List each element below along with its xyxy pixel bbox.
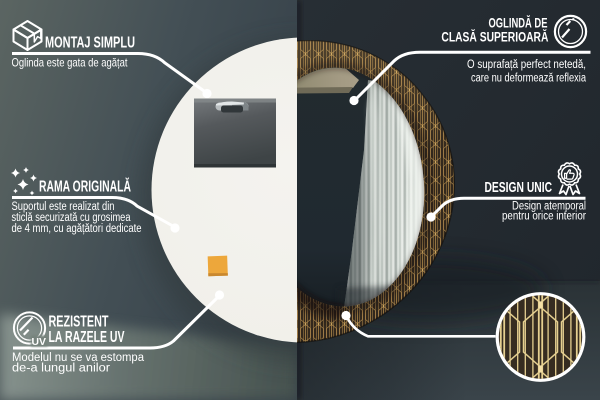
svg-text:DESIGN UNIC: DESIGN UNIC: [485, 179, 553, 196]
svg-text:RAMA ORIGINALĂ: RAMA ORIGINALĂ: [39, 177, 131, 196]
svg-text:REZISTENT: REZISTENT: [49, 314, 109, 331]
svg-text:pentru orice interior: pentru orice interior: [502, 211, 586, 223]
svg-text:de-a lungul anilor: de-a lungul anilor: [12, 363, 110, 375]
svg-text:O suprafață perfect netedă,: O suprafață perfect netedă,: [467, 59, 586, 71]
svg-text:OGLINDĂ DE: OGLINDĂ DE: [489, 16, 548, 31]
svg-text:Oglinda este gata de agățat: Oglinda este gata de agățat: [12, 56, 129, 70]
svg-text:LA RAZELE UV: LA RAZELE UV: [49, 329, 125, 346]
svg-text:MONTAJ SIMPLU: MONTAJ SIMPLU: [45, 35, 135, 52]
svg-text:CLASĂ SUPERIOARĂ: CLASĂ SUPERIOARĂ: [441, 30, 548, 45]
svg-text:care nu deformează reflexia: care nu deformează reflexia: [471, 73, 586, 85]
svg-text:de 4 mm, cu agățători dedicate: de 4 mm, cu agățători dedicate: [12, 223, 142, 235]
svg-text:UV: UV: [32, 336, 47, 348]
